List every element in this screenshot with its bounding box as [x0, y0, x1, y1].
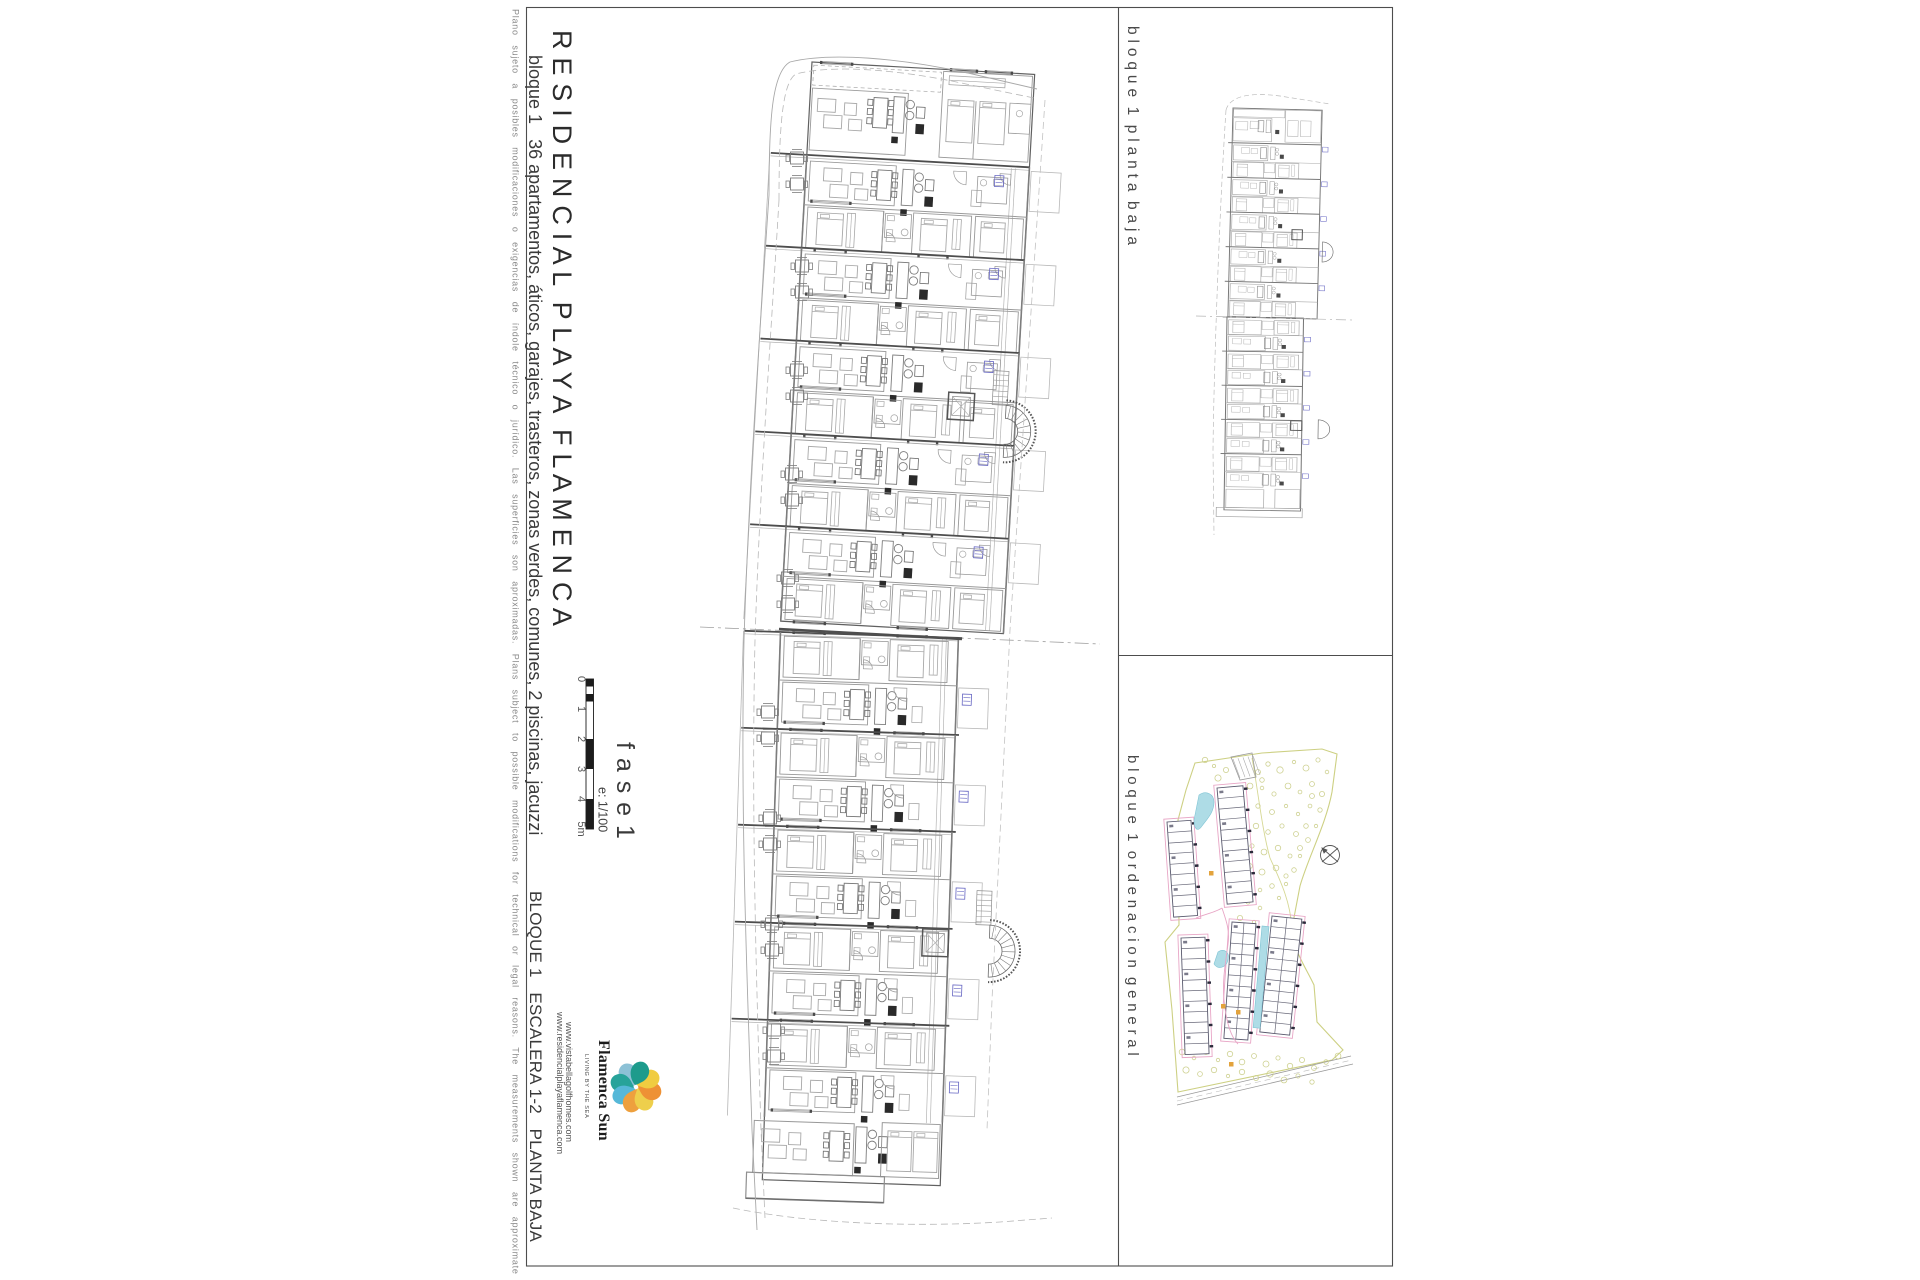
svg-text:0: 0 — [575, 676, 587, 682]
svg-text:R E S I D E N C I A L P L A Y: R E S I D E N C I A L P L A Y A F L A M … — [547, 30, 577, 626]
svg-text:b l o q u e 1 o r d e n a c: b l o q u e 1 o r d e n a c i o n g e n … — [1124, 755, 1141, 1056]
svg-text:www.residencialplayaflamenca.c: www.residencialplayaflamenca.com — [555, 1011, 565, 1154]
svg-text:Flamenca Sun: Flamenca Sun — [595, 1040, 612, 1141]
svg-text:e: 1/100: e: 1/100 — [596, 787, 610, 832]
svg-text:b l o q u e 1 p l a n t a b: b l o q u e 1 p l a n t a b a j a — [1124, 26, 1141, 245]
svg-text:f a s e 1: f a s e 1 — [611, 742, 639, 840]
svg-text:Plano sujeto a posibles modifi: Plano sujeto a posibles modificaciones o… — [511, 9, 521, 1275]
svg-text:3: 3 — [575, 766, 587, 772]
svg-text:2: 2 — [575, 736, 587, 742]
svg-text:5m: 5m — [575, 821, 587, 836]
svg-text:bloque 1 36 apartamentos, át: bloque 1 36 apartamentos, áticos, garaje… — [525, 55, 545, 835]
svg-text:1: 1 — [575, 706, 587, 712]
svg-text:BLOQUE 1 ESCALERA 1-2 PLAN: BLOQUE 1 ESCALERA 1-2 PLANTA BAJA — [526, 891, 545, 1242]
svg-text:LIVING BY THE SEA: LIVING BY THE SEA — [583, 1054, 589, 1119]
svg-text:4: 4 — [575, 796, 587, 802]
